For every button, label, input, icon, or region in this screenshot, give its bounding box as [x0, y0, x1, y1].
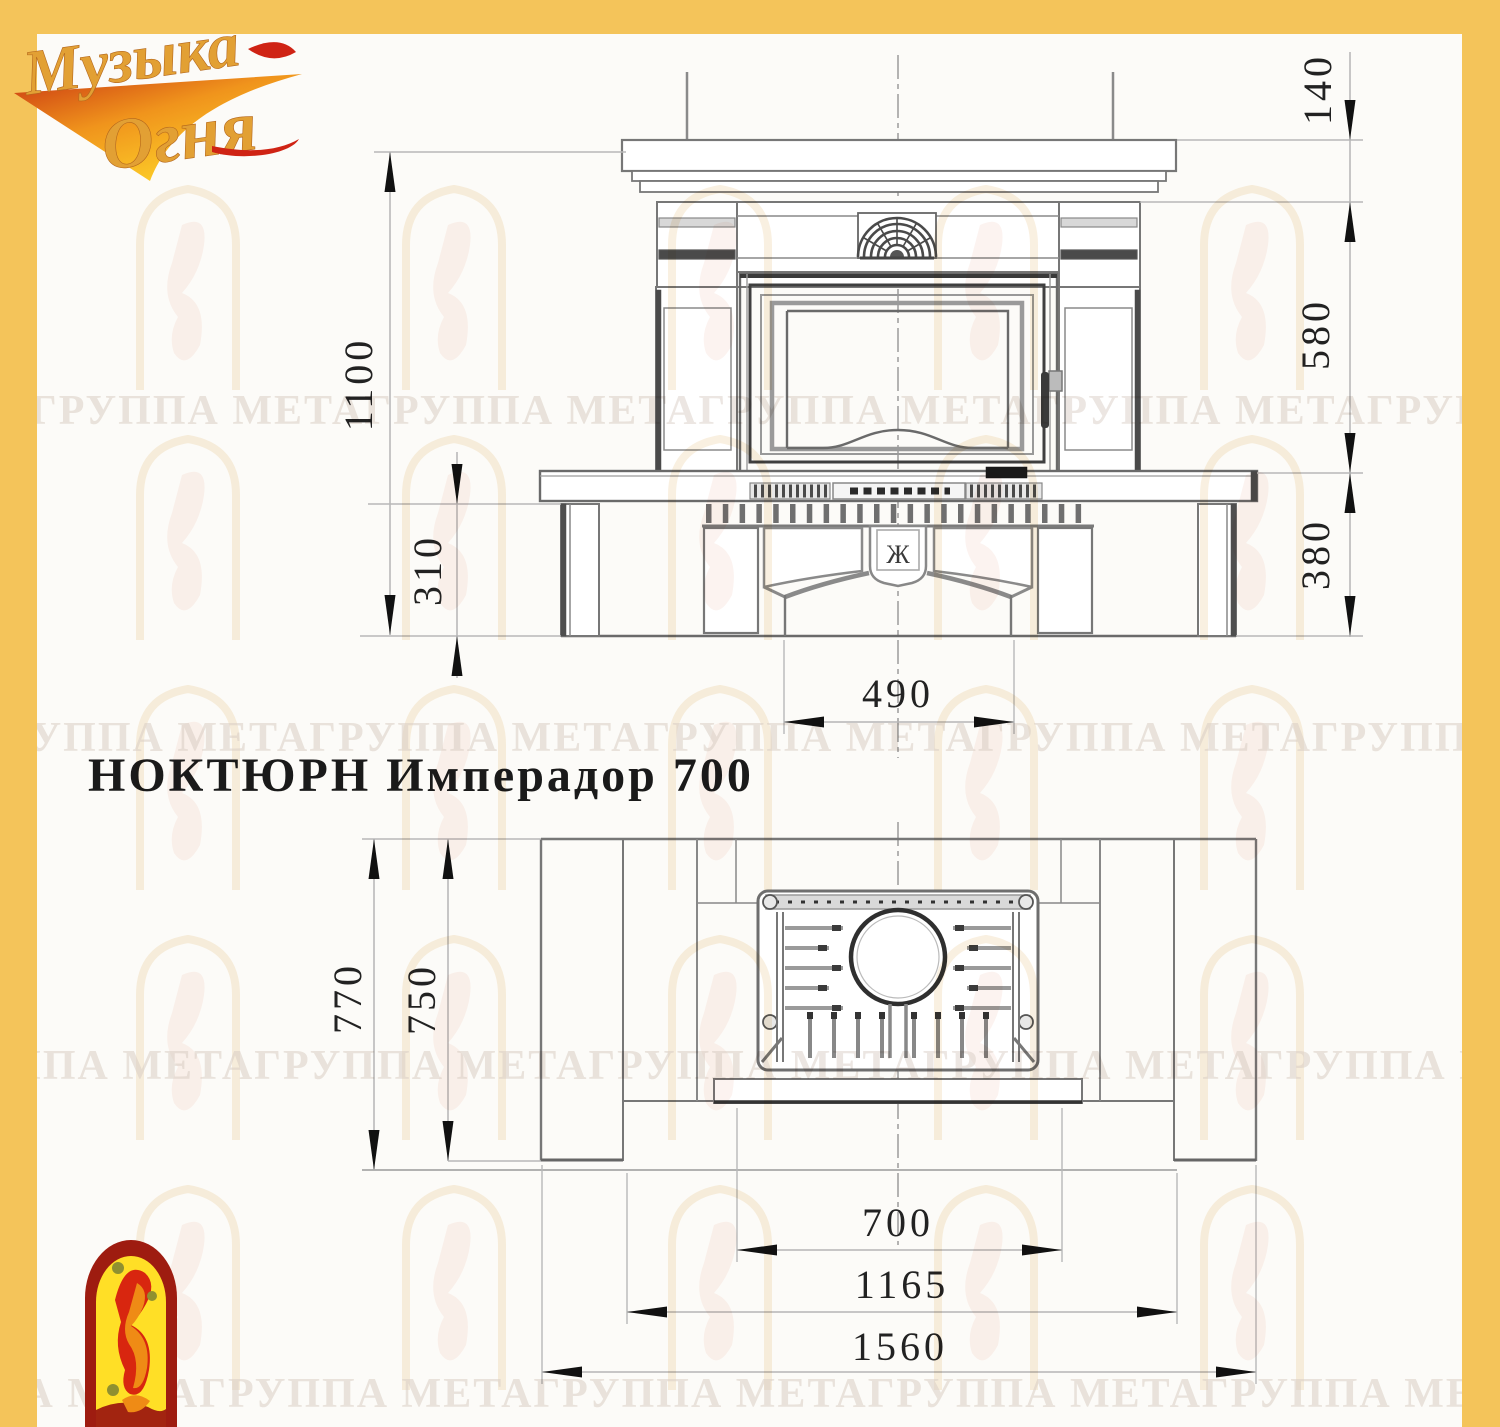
svg-text:ГРУППА МЕТАГРУППА МЕТАГРУППА М: ГРУППА МЕТАГРУППА МЕТАГРУППА МЕТАГРУППА … [0, 715, 1500, 761]
svg-text:1560: 1560 [852, 1324, 948, 1369]
svg-text:ГРУППА МЕТАГРУППА МЕТАГРУППА М: ГРУППА МЕТАГРУППА МЕТАГРУППА МЕТАГРУППА … [0, 1371, 1500, 1417]
svg-text:700: 700 [862, 1200, 934, 1245]
svg-text:770: 770 [325, 962, 370, 1034]
svg-text:Ж: Ж [886, 540, 910, 569]
svg-text:490: 490 [862, 671, 934, 716]
svg-text:ГРУППА МЕТАГРУППА МЕТАГРУППА М: ГРУППА МЕТАГРУППА МЕТАГРУППА МЕТАГРУППА … [30, 388, 1500, 434]
svg-text:ГРУППА МЕТАГРУППА МЕТАГРУППА М: ГРУППА МЕТАГРУППА МЕТАГРУППА МЕТАГРУППА … [0, 1043, 1500, 1089]
svg-text:140: 140 [1295, 53, 1340, 125]
